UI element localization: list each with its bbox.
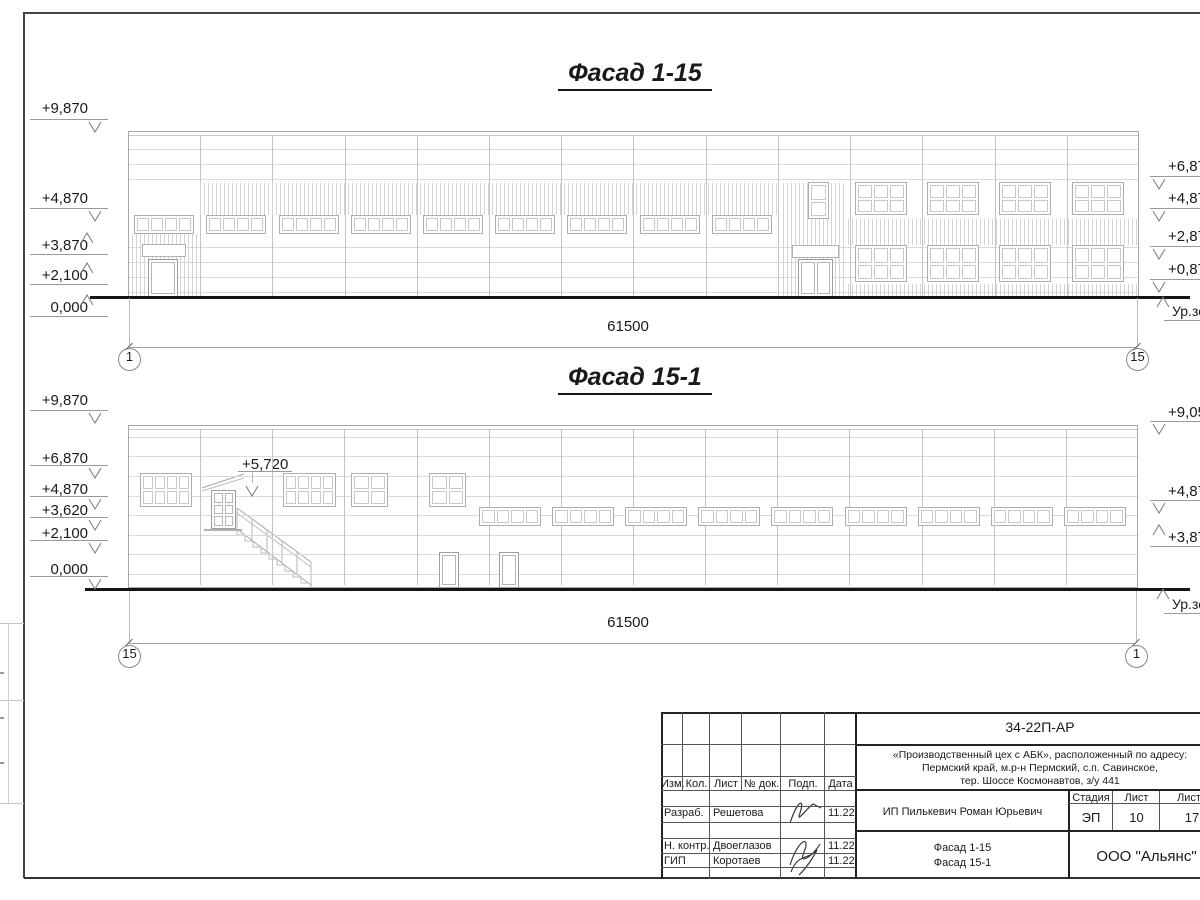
exit-door bbox=[439, 552, 459, 588]
elevation-mark: +9,870 bbox=[30, 392, 88, 411]
window-pane bbox=[512, 218, 524, 231]
window-pane bbox=[167, 476, 177, 489]
window-pane bbox=[165, 218, 177, 231]
window-pane bbox=[1018, 265, 1032, 280]
doc-code: 34-22П-АР bbox=[856, 719, 1200, 737]
dimension-line bbox=[129, 643, 1136, 644]
line bbox=[995, 135, 996, 296]
elevation-arrow-icon bbox=[1152, 421, 1166, 433]
elevation-arrow-icon bbox=[80, 260, 94, 272]
abk-lower-window bbox=[1072, 245, 1124, 282]
tb-name-nkontr: Двоеглазов bbox=[713, 840, 771, 854]
cladding-hatch bbox=[200, 183, 778, 215]
window-pane bbox=[1018, 185, 1032, 198]
window-pane bbox=[323, 476, 333, 489]
ribbon-window bbox=[991, 507, 1053, 526]
line bbox=[345, 135, 346, 296]
door-transom-window bbox=[808, 182, 829, 219]
window-pane bbox=[672, 510, 685, 523]
window-pane bbox=[179, 491, 189, 504]
window-pane bbox=[179, 476, 189, 489]
window-pane bbox=[891, 510, 904, 523]
window-pane bbox=[155, 476, 165, 489]
facade1-axis-left-bubble: 1 bbox=[118, 348, 141, 371]
facade1-axis-right-bubble: 15 bbox=[1126, 348, 1149, 371]
window-pane bbox=[729, 218, 741, 231]
window-pane bbox=[599, 510, 612, 523]
elevation-shelf bbox=[30, 284, 108, 285]
abk-lower-window bbox=[927, 245, 979, 282]
window-pane bbox=[442, 555, 456, 585]
cladding-hatch bbox=[848, 219, 1139, 245]
window-pane bbox=[482, 510, 495, 523]
line bbox=[1136, 591, 1137, 643]
line bbox=[417, 135, 418, 296]
window-pane bbox=[137, 218, 149, 231]
elevation-arrow-icon bbox=[1156, 294, 1170, 306]
tb-company: ООО "Альянс" bbox=[1069, 848, 1200, 867]
window-pane bbox=[1023, 510, 1036, 523]
titleblock-line bbox=[741, 712, 742, 791]
window-pane bbox=[151, 262, 175, 294]
margin-stamp-line bbox=[8, 623, 9, 803]
line bbox=[344, 429, 345, 585]
window-pane bbox=[701, 510, 714, 523]
window-pane bbox=[716, 510, 729, 523]
window-pane bbox=[209, 218, 221, 231]
elevation-arrow-icon bbox=[80, 292, 94, 304]
window-pane bbox=[1034, 265, 1048, 280]
line bbox=[1137, 298, 1138, 347]
window-pane bbox=[143, 476, 153, 489]
window-pane bbox=[1018, 200, 1032, 213]
line bbox=[633, 135, 634, 296]
elevation-arrow-icon bbox=[88, 410, 102, 422]
window-pane bbox=[628, 510, 641, 523]
window-pane bbox=[671, 218, 683, 231]
elevation-mark: +4,870 bbox=[30, 190, 88, 209]
line bbox=[850, 135, 851, 296]
window-pane bbox=[930, 265, 944, 280]
margin-stamp-line bbox=[0, 803, 24, 804]
window-pane bbox=[298, 491, 308, 504]
window-pane bbox=[354, 491, 369, 504]
drawing-sheet: Фасад 1-15 Фасад 15-1 61500 61500 1 15 1… bbox=[0, 0, 1200, 900]
line bbox=[200, 429, 201, 585]
window-pane bbox=[311, 491, 321, 504]
window-pane bbox=[715, 218, 727, 231]
ribbon-window bbox=[552, 507, 614, 526]
elevation-mark: +9,05 bbox=[1168, 404, 1200, 423]
facade2-axis-left-bubble: 15 bbox=[118, 645, 141, 668]
window-pane bbox=[237, 218, 249, 231]
ground-line bbox=[90, 296, 1190, 299]
facade1-dimension: 61500 bbox=[548, 318, 708, 337]
titleblock-line bbox=[661, 853, 856, 854]
titleblock-line bbox=[661, 806, 856, 807]
elevation-arrow-icon bbox=[88, 465, 102, 477]
window-pane bbox=[935, 510, 948, 523]
window-pane bbox=[874, 248, 888, 263]
window-pane bbox=[223, 218, 235, 231]
facade1-title: Фасад 1-15 bbox=[490, 58, 780, 89]
upper-window bbox=[140, 473, 192, 507]
window-pane bbox=[858, 265, 872, 280]
window-pane bbox=[584, 218, 596, 231]
window-pane bbox=[225, 505, 234, 515]
window-pane bbox=[743, 218, 755, 231]
window-pane bbox=[155, 491, 165, 504]
line bbox=[272, 429, 273, 585]
elevation-mark: +3,87 bbox=[1168, 529, 1200, 548]
window-pane bbox=[877, 510, 890, 523]
window-pane bbox=[817, 262, 831, 294]
line bbox=[129, 591, 130, 643]
elevation-arrow-icon bbox=[88, 540, 102, 552]
stair-door bbox=[211, 490, 236, 529]
titleblock-line bbox=[661, 838, 856, 839]
titleblock-line bbox=[855, 830, 1200, 832]
window-pane bbox=[449, 476, 464, 489]
window-pane bbox=[1107, 265, 1121, 280]
titleblock-line bbox=[661, 822, 856, 823]
window-pane bbox=[354, 476, 369, 489]
ribbon-window bbox=[206, 215, 266, 234]
tb-stage-value: ЭП bbox=[1069, 810, 1113, 826]
margin-stamp-text-fragment bbox=[0, 762, 4, 764]
tb-sheets-value: 17 bbox=[1160, 810, 1200, 826]
window-pane bbox=[502, 555, 516, 585]
ribbon-window bbox=[351, 215, 411, 234]
window-pane bbox=[811, 185, 826, 200]
window-pane bbox=[964, 510, 977, 523]
window-pane bbox=[1107, 200, 1121, 213]
titleblock-line bbox=[1068, 803, 1200, 804]
window-pane bbox=[251, 218, 263, 231]
elevation-arrow-icon bbox=[80, 230, 94, 242]
window-pane bbox=[874, 265, 888, 280]
window-pane bbox=[950, 510, 963, 523]
elevation-mark: +4,87 bbox=[1168, 483, 1200, 502]
window-pane bbox=[468, 218, 480, 231]
window-pane bbox=[946, 200, 960, 213]
window-pane bbox=[930, 200, 944, 213]
window-pane bbox=[1075, 265, 1089, 280]
window-pane bbox=[874, 200, 888, 213]
window-pane bbox=[1034, 248, 1048, 263]
window-pane bbox=[818, 510, 831, 523]
titleblock-line bbox=[661, 790, 856, 791]
line bbox=[706, 135, 707, 296]
line bbox=[489, 135, 490, 296]
line bbox=[238, 471, 292, 472]
sheet-frame bbox=[23, 12, 25, 878]
margin-stamp-text-fragment bbox=[0, 672, 4, 674]
window-pane bbox=[1002, 185, 1016, 198]
window-pane bbox=[643, 510, 656, 523]
signboard bbox=[142, 244, 186, 257]
stair-landing bbox=[204, 529, 242, 531]
window-pane bbox=[858, 200, 872, 213]
window-pane bbox=[526, 510, 539, 523]
line bbox=[417, 429, 418, 585]
ground-line bbox=[85, 588, 1190, 591]
facade2-axis-right-bubble: 1 bbox=[1125, 645, 1148, 668]
window-pane bbox=[946, 185, 960, 198]
tb-drawing-name-1: Фасад 1-15 bbox=[856, 842, 1069, 856]
elevation-arrow-icon bbox=[88, 517, 102, 529]
elevation-arrow-icon bbox=[88, 119, 102, 131]
tb-role-razrab: Разраб. bbox=[664, 807, 704, 821]
line bbox=[561, 135, 562, 296]
window-pane bbox=[874, 185, 888, 198]
line bbox=[922, 135, 923, 296]
window-pane bbox=[962, 248, 976, 263]
window-pane bbox=[310, 218, 322, 231]
window-pane bbox=[151, 218, 163, 231]
ribbon-window bbox=[567, 215, 627, 234]
window-pane bbox=[382, 218, 394, 231]
window-pane bbox=[811, 202, 826, 217]
signboard bbox=[792, 245, 839, 258]
window-pane bbox=[890, 185, 904, 198]
window-pane bbox=[1034, 200, 1048, 213]
window-pane bbox=[1081, 510, 1094, 523]
window-pane bbox=[994, 510, 1007, 523]
facade2-ground-label: Ур.зе bbox=[1172, 596, 1200, 614]
window-pane bbox=[498, 218, 510, 231]
ribbon-window bbox=[1064, 507, 1126, 526]
line bbox=[129, 298, 130, 347]
window-pane bbox=[454, 218, 466, 231]
tb-drawing-name-2: Фасад 15-1 bbox=[856, 857, 1069, 871]
margin-stamp-text-fragment bbox=[0, 717, 4, 719]
window-pane bbox=[426, 218, 438, 231]
window-pane bbox=[890, 200, 904, 213]
window-pane bbox=[946, 265, 960, 280]
titleblock-line bbox=[855, 744, 1200, 746]
elevation-mark: +4,87 bbox=[1168, 190, 1200, 209]
elevation-arrow-icon bbox=[1152, 208, 1166, 220]
window-pane bbox=[1107, 185, 1121, 198]
ribbon-window bbox=[640, 215, 700, 234]
window-pane bbox=[143, 491, 153, 504]
window-pane bbox=[298, 476, 308, 489]
window-pane bbox=[962, 265, 976, 280]
elevation-arrow-icon bbox=[88, 496, 102, 508]
window-pane bbox=[612, 218, 624, 231]
elevation-shelf bbox=[30, 316, 108, 317]
window-pane bbox=[801, 262, 815, 294]
window-pane bbox=[1034, 185, 1048, 198]
window-pane bbox=[643, 218, 655, 231]
titleblock-line bbox=[661, 867, 856, 868]
titleblock-line bbox=[661, 776, 856, 777]
window-pane bbox=[1037, 510, 1050, 523]
entrance-door bbox=[148, 259, 178, 297]
window-pane bbox=[440, 218, 452, 231]
window-pane bbox=[282, 218, 294, 231]
facade2-title-text: Фасад 15-1 bbox=[558, 363, 712, 395]
window-pane bbox=[962, 185, 976, 198]
window-pane bbox=[598, 218, 610, 231]
window-pane bbox=[396, 218, 408, 231]
titleblock-line bbox=[682, 712, 683, 791]
window-pane bbox=[570, 510, 583, 523]
abk-upper-window bbox=[999, 182, 1051, 215]
window-pane bbox=[1018, 248, 1032, 263]
window-pane bbox=[1075, 185, 1089, 198]
elevation-mark: +6,87 bbox=[1168, 158, 1200, 177]
window-pane bbox=[296, 218, 308, 231]
window-pane bbox=[526, 218, 538, 231]
tb-sheet-value: 10 bbox=[1113, 810, 1160, 826]
ribbon-window bbox=[625, 507, 687, 526]
window-pane bbox=[179, 218, 191, 231]
window-pane bbox=[1091, 200, 1105, 213]
line bbox=[1164, 320, 1200, 321]
window-pane bbox=[497, 510, 510, 523]
window-pane bbox=[774, 510, 787, 523]
window-pane bbox=[214, 493, 223, 503]
window-pane bbox=[555, 510, 568, 523]
facade1-title-text: Фасад 1-15 bbox=[558, 59, 712, 91]
ribbon-window bbox=[495, 215, 555, 234]
sheet-frame bbox=[24, 877, 1200, 879]
window-pane bbox=[930, 185, 944, 198]
window-pane bbox=[789, 510, 802, 523]
window-pane bbox=[1107, 248, 1121, 263]
window-pane bbox=[890, 248, 904, 263]
window-pane bbox=[354, 218, 366, 231]
tb-client: ИП Пилькевич Роман Юрьевич bbox=[856, 806, 1069, 820]
window-pane bbox=[921, 510, 934, 523]
abk-upper-window bbox=[1072, 182, 1124, 215]
titleblock-line bbox=[855, 789, 1200, 791]
exit-door bbox=[499, 552, 519, 588]
line bbox=[1164, 613, 1200, 614]
ribbon-window bbox=[698, 507, 760, 526]
line bbox=[778, 135, 779, 296]
elevation-shelf bbox=[1150, 546, 1200, 547]
window-pane bbox=[371, 476, 386, 489]
window-pane bbox=[214, 516, 223, 526]
window-pane bbox=[584, 510, 597, 523]
window-pane bbox=[685, 218, 697, 231]
line bbox=[1067, 135, 1068, 296]
project-address-line1: «Производственный цех с АБК», расположен… bbox=[856, 749, 1200, 762]
window-pane bbox=[1075, 248, 1089, 263]
window-pane bbox=[962, 200, 976, 213]
upper-window bbox=[351, 473, 388, 507]
window-pane bbox=[1096, 510, 1109, 523]
window-pane bbox=[311, 476, 321, 489]
tb-name-razrab: Решетова bbox=[713, 807, 763, 821]
elevation-arrow-icon bbox=[1156, 586, 1170, 598]
upper-window bbox=[283, 473, 336, 507]
window-pane bbox=[1002, 248, 1016, 263]
upper-window bbox=[429, 473, 466, 507]
window-pane bbox=[930, 248, 944, 263]
project-address-line3: тер. Шоссе Космонавтов, з/у 441 bbox=[856, 775, 1200, 788]
tb-date-razrab: 11.22 bbox=[828, 807, 855, 821]
window-pane bbox=[1091, 265, 1105, 280]
window-pane bbox=[449, 491, 464, 504]
line bbox=[272, 135, 273, 296]
window-pane bbox=[848, 510, 861, 523]
window-pane bbox=[858, 185, 872, 198]
titleblock-line bbox=[1112, 791, 1113, 832]
elevation-arrow-icon bbox=[1152, 176, 1166, 188]
facade2-dimension: 61500 bbox=[548, 614, 708, 633]
window-pane bbox=[286, 491, 296, 504]
window-pane bbox=[286, 476, 296, 489]
elevation-mark: +9,870 bbox=[30, 100, 88, 119]
elevation-arrow-icon bbox=[1152, 279, 1166, 291]
window-pane bbox=[1075, 200, 1089, 213]
elevation-arrow-icon bbox=[1152, 522, 1166, 534]
window-pane bbox=[858, 248, 872, 263]
window-pane bbox=[368, 218, 380, 231]
window-pane bbox=[1091, 248, 1105, 263]
facade1-ground-label: Ур.зе bbox=[1172, 303, 1200, 321]
window-pane bbox=[946, 248, 960, 263]
window-pane bbox=[432, 476, 447, 489]
elevation-arrow-icon bbox=[1152, 500, 1166, 512]
window-pane bbox=[1002, 265, 1016, 280]
window-pane bbox=[745, 510, 758, 523]
abk-lower-window bbox=[999, 245, 1051, 282]
window-pane bbox=[432, 491, 447, 504]
window-pane bbox=[225, 493, 234, 503]
window-pane bbox=[862, 510, 875, 523]
window-pane bbox=[730, 510, 743, 523]
window-pane bbox=[1008, 510, 1021, 523]
sheet-frame bbox=[23, 12, 1200, 14]
elevation-arrow-icon bbox=[245, 483, 259, 495]
elevation-mark: +2,87 bbox=[1168, 228, 1200, 247]
window-pane bbox=[324, 218, 336, 231]
window-pane bbox=[371, 491, 386, 504]
ribbon-window bbox=[771, 507, 833, 526]
window-pane bbox=[167, 491, 177, 504]
titleblock-line bbox=[1068, 791, 1070, 879]
ribbon-window bbox=[134, 215, 194, 234]
window-pane bbox=[540, 218, 552, 231]
window-pane bbox=[890, 265, 904, 280]
window-pane bbox=[1067, 510, 1080, 523]
ribbon-window bbox=[479, 507, 541, 526]
abk-upper-window bbox=[927, 182, 979, 215]
elevation-arrow-icon bbox=[1152, 246, 1166, 258]
elevation-arrow-icon bbox=[88, 576, 102, 588]
elevation-shelf bbox=[30, 254, 108, 255]
ribbon-window bbox=[279, 215, 339, 234]
ribbon-window bbox=[845, 507, 907, 526]
abk-upper-window bbox=[855, 182, 907, 215]
elevation-mark: +0,87 bbox=[1168, 261, 1200, 280]
margin-stamp-line bbox=[0, 700, 24, 701]
window-pane bbox=[1110, 510, 1123, 523]
window-pane bbox=[570, 218, 582, 231]
window-pane bbox=[657, 218, 669, 231]
window-pane bbox=[1091, 185, 1105, 198]
titleblock-line bbox=[1159, 791, 1160, 832]
facade2-title: Фасад 15-1 bbox=[490, 362, 780, 393]
line bbox=[200, 135, 201, 296]
window-pane bbox=[1002, 200, 1016, 213]
window-pane bbox=[657, 510, 670, 523]
